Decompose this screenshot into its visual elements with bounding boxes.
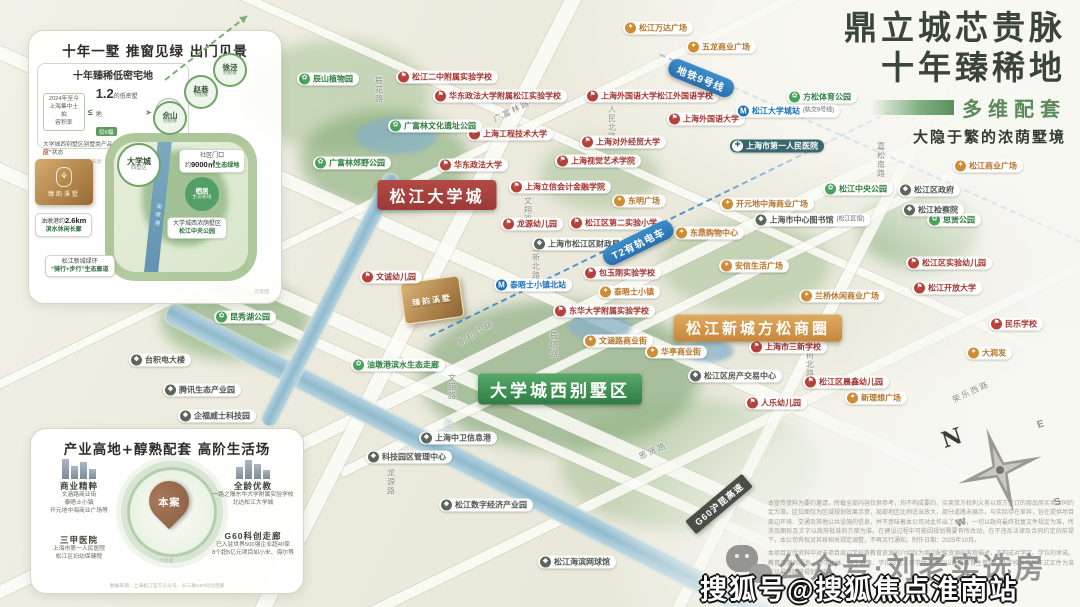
map-label-text: 上海市中心图书馆 <box>770 215 834 224</box>
tree-emblem-icon: ⚘ <box>56 167 72 187</box>
main-title-line2: 十年臻稀地 <box>844 48 1066 88</box>
scarcity-title: 十年臻稀低密宅地 <box>43 67 183 82</box>
map-label-school: ⚑华东政法大学附属松江实验学校 <box>433 90 567 103</box>
map-label-text: 松江数字经济产业园 <box>455 500 527 509</box>
school-icon: ⚑ <box>585 268 596 279</box>
map-label-text: 文诚幼儿园 <box>376 272 416 281</box>
map-label-text: 龙源幼儿园 <box>517 219 557 228</box>
map-banner: 大学城西别墅区 <box>478 374 642 405</box>
title-block: 鼎立城芯贵脉 十年臻稀地 多维配套 大隐于繁的浓荫墅境 <box>844 8 1066 147</box>
road-label: 文涵路 <box>447 374 458 401</box>
gov-icon: ◆ <box>165 385 176 396</box>
shop-icon: ✦ <box>625 23 636 34</box>
road-label: 辰花路 <box>374 77 385 104</box>
map-label-text: 华东政法大学 <box>454 160 502 169</box>
shop-icon: ✦ <box>585 336 596 347</box>
school-icon: ⚑ <box>914 283 925 294</box>
project-logo-text: 臻韵溪墅 <box>48 189 80 198</box>
map-label-text: 五龙商业广场 <box>702 42 750 51</box>
map-label-text: 松江开放大学 <box>928 283 976 292</box>
disclaimer-p1: 本宣传资料为要约邀请，所载全部内容仅供参考，均不构成要约，买卖双方权利义务以双方… <box>768 500 1074 546</box>
shop-icon: ✦ <box>722 199 733 210</box>
map-label-shop: ✦松江万达广场 <box>623 22 693 35</box>
map-label-text: 松江区实验幼儿园 <box>922 258 986 267</box>
main-title-line1: 鼎立城芯贵脉 <box>844 8 1066 48</box>
gov-icon: ◆ <box>904 205 915 216</box>
villa-belt-xujing: 徐泾别墅群 <box>213 53 247 87</box>
map-banner: 松江大学城 <box>377 180 496 210</box>
quadrant-commerce: 商业精粹 文涵路商业街 泰晤士小镇 开元地中海商业广场等 <box>31 457 127 516</box>
school-icon: ⚑ <box>557 156 568 167</box>
gov-icon: ◆ <box>690 371 701 382</box>
ratio-stat: 1.2的低密墅地 仅6幅 <box>96 85 143 139</box>
map-label-shop: ✦开元地中海商业广场 <box>720 198 814 211</box>
shop-icon: ✦ <box>688 42 699 53</box>
map-label-school: ⚑华东政法大学 <box>438 159 508 172</box>
map-label-text: 台积电大楼 <box>145 355 185 364</box>
quadrant-hospital: 三甲医院 上海市第一人民医院 松江区妇幼保健院 <box>31 535 127 562</box>
school-icon: ⚑ <box>435 91 446 102</box>
land-condition: 2024年至今 上海集中土拍 容积率 <box>43 93 85 130</box>
road-label: 嘉松南路 <box>876 142 887 178</box>
map-label-school: ⚑龙源幼儿园 <box>501 218 563 231</box>
callout-central-park: 大学城西浓荫墅区 松江中央公园 <box>167 217 227 239</box>
school-icon: ⚑ <box>747 398 758 409</box>
map-label-text: 泰晤士小镇北站 <box>510 280 566 289</box>
map-label-gov: ◆企福威士科技园 <box>178 410 256 423</box>
villa-belt-zhaoxiang: 赵巷别墅群 <box>184 75 218 109</box>
map-label-text: 包玉刚实验学校 <box>599 268 655 277</box>
map-label-text: 上海立信会计金融学院 <box>525 182 605 191</box>
shop-icon: ✦ <box>968 348 979 359</box>
map-label-text: 松江大学城站 <box>752 106 800 115</box>
map-label-hosp: ✚上海市第一人民医院 <box>730 140 824 153</box>
map-label-text: 东明广场 <box>628 196 660 205</box>
map-label-school: ⚑文诚幼儿园 <box>360 271 422 284</box>
map-label-gov: ◆松江海滨网球馆 <box>538 556 616 569</box>
promo-map-image: 臻韵溪墅 辰花路广富林路人民北路嘉松南路文翔路三新北路新松江路辰塔路玉树北路文涵… <box>0 0 1080 607</box>
map-label-sub: (松江区馆) <box>837 217 865 224</box>
le-symbol: ≤ <box>88 107 93 117</box>
map-label-sub: (轨交9号线) <box>803 108 834 115</box>
school-icon: ⚑ <box>805 377 816 388</box>
gov-icon: ◆ <box>368 452 379 463</box>
diagram-river-name: 油墩港 <box>152 203 163 229</box>
shop-icon: ✦ <box>847 393 858 404</box>
park-icon: ✿ <box>353 360 364 371</box>
map-label-text: 科技园区管理中心 <box>382 452 446 461</box>
map-label-text: 松江区晨鑫幼儿园 <box>819 377 883 386</box>
tagline: 多维配套 <box>962 93 1066 122</box>
map-label-shop: ✦兰桥休闲商业广场 <box>799 290 885 303</box>
gov-icon: ◆ <box>131 355 142 366</box>
map-label-shop: ✦文涵路商业街 <box>583 335 653 348</box>
shop-icon: ✦ <box>647 347 658 358</box>
map-label-text: 文涵路商业街 <box>599 336 647 345</box>
school-icon: ⚑ <box>398 72 409 83</box>
gov-icon: ◆ <box>180 411 191 422</box>
map-label-school: ⚑人乐幼儿园 <box>745 397 807 410</box>
shop-icon: ✦ <box>614 196 625 207</box>
park-icon: ✿ <box>789 92 800 103</box>
map-label-gov: ◆松江区政府 <box>898 184 960 197</box>
project-logo-card: ⚘ 臻韵溪墅 <box>35 159 93 205</box>
map-label-school: ⚑松江二中附属实验学校 <box>396 71 498 84</box>
map-label-park: ✿广富林文化遗址公园 <box>388 120 482 133</box>
map-label-text: 上海中卫信息港 <box>435 433 491 442</box>
park-icon: ✿ <box>299 74 310 85</box>
map-label-text: 东华大学附属实验学校 <box>569 306 649 315</box>
map-label-shop: ✦新理想广场 <box>845 392 907 405</box>
map-label-text: 上海市三新学校 <box>765 342 821 351</box>
school-icon: ⚑ <box>669 114 680 125</box>
map-label-text: 新理想广场 <box>861 393 901 402</box>
park-icon: ✿ <box>315 158 326 169</box>
map-label-text: 东鼎购物中心 <box>690 228 738 237</box>
park-icon: ✿ <box>390 121 401 132</box>
villa-belt-sheshan: 佘山别墅群 <box>153 101 187 135</box>
map-label-text: 企福威士科技园 <box>194 411 250 420</box>
subtitle: 大隐于繁的浓荫墅境 <box>844 126 1066 147</box>
gov-icon: ◆ <box>441 500 452 511</box>
shop-icon: ✦ <box>801 291 812 302</box>
map-label-text: 松江区政府 <box>914 185 954 194</box>
callout-riverfront: 油墩港约2.6km 滨水休闲长廊 <box>35 213 92 237</box>
shop-icon: ✦ <box>955 161 966 172</box>
school-icon: ⚑ <box>991 319 1002 330</box>
map-label-text: 泰晤士小镇 <box>614 287 654 296</box>
map-label-text: 华亭商业街 <box>661 347 701 356</box>
map-label-metro: M泰晤士小镇北站 <box>494 279 572 292</box>
map-label-shop: ✦东鼎购物中心 <box>674 227 744 240</box>
road-label: 龙源路 <box>386 469 397 496</box>
map-label-school: ⚑上海对外经贸大学 <box>580 136 666 149</box>
hosp-icon: ✚ <box>732 141 743 152</box>
map-label-shop: ✦泰晤士小镇 <box>598 286 660 299</box>
school-icon: ⚑ <box>511 182 522 193</box>
industry-card-title: 产业高地+醇熟配套 高阶生活场 <box>31 429 303 458</box>
gov-icon: ◆ <box>421 433 432 444</box>
map-label-text: 广富林文化遗址公园 <box>404 121 476 130</box>
map-label-park: ✿油墩港滨水生态走廊 <box>351 359 445 372</box>
map-label-shop: ✦松江商业广场 <box>953 160 1023 173</box>
map-label-text: 上海外国语大学松江外国语学校 <box>601 91 713 100</box>
map-label-shop: ✦安信生活广场 <box>719 260 789 273</box>
school-icon: ⚑ <box>571 218 582 229</box>
map-label-school: ⚑民乐学校 <box>989 318 1043 331</box>
school-icon: ⚑ <box>503 219 514 230</box>
map-label-text: 油墩港滨水生态走廊 <box>367 360 439 369</box>
map-label-gov: ◆松江检察院 <box>902 204 964 217</box>
schematic-note: 示意图 <box>255 288 269 295</box>
map-banner: 松江新城方松商圈 <box>674 315 842 342</box>
map-label-gov: ◆上海市中心图书馆(松江区馆) <box>754 214 871 227</box>
map-label-text: 腾讯生态产业园 <box>179 385 235 394</box>
map-label-text: 上海外国语大学 <box>683 114 739 123</box>
map-label-school: ⚑上海立信会计金融学院 <box>509 181 611 194</box>
arrow-icon: ➤ <box>145 108 152 117</box>
school-icon: ⚑ <box>440 160 451 171</box>
map-label-text: 开元地中海商业广场 <box>736 199 808 208</box>
map-label-text: 人乐幼儿园 <box>761 398 801 407</box>
map-label-text: 上海对外经贸大学 <box>596 137 660 146</box>
quadrant-g60: G60科创走廊 已入驻世界500强企业超40家 8个超5亿元项目如小米、海尔等 <box>205 531 301 558</box>
map-label-text: 松江万达广场 <box>639 23 687 32</box>
map-label-park: ✿昆秀湖公园 <box>214 311 276 324</box>
buildings-illustration <box>205 457 301 479</box>
park-icon: ✿ <box>825 184 836 195</box>
eco-card-title: 十年一墅 推窗见绿 出门见景 <box>29 31 281 60</box>
school-icon: ⚑ <box>751 342 762 353</box>
map-label-text: 昆秀湖公园 <box>230 312 270 321</box>
map-label-school: ⚑松江区晨鑫幼儿园 <box>803 376 889 389</box>
map-label-shop: ✦大润发 <box>966 347 1012 360</box>
map-label-text: 松江区第二实验小学 <box>585 218 657 227</box>
tagline-deco-bar <box>870 100 954 115</box>
quadrant-education: 全龄优教 一路之隔东华大学附属实验学校 北达松江大学城 <box>205 457 301 508</box>
school-icon: ⚑ <box>555 306 566 317</box>
map-label-school: ⚑上海外国语大学 <box>667 113 745 126</box>
industry-card: 产业高地+醇熟配套 高阶生活场 本案 示意图 商业精粹 文涵路商业街 泰晤士小镇… <box>30 428 304 594</box>
map-label-gov: ◆松江区房产交易中心 <box>688 370 782 383</box>
map-label-text: 松江商业广场 <box>969 161 1017 170</box>
map-label-text: 广富林郊野公园 <box>329 158 385 167</box>
gov-icon: ◆ <box>540 557 551 568</box>
map-label-school: ⚑松江开放大学 <box>912 282 982 295</box>
zone-circle: 大学城 西墅区 <box>117 143 161 187</box>
school-icon: ⚑ <box>582 137 593 148</box>
shop-icon: ✦ <box>721 261 732 272</box>
map-label-text: 上海视觉艺术学院 <box>571 156 635 165</box>
map-label-text: 松江中央公园 <box>839 184 887 193</box>
callout-gate-green: 社区门口 约9000㎡生态绿地 <box>179 149 245 173</box>
park-icon: ✿ <box>216 312 227 323</box>
map-label-text: 松江区房产交易中心 <box>704 371 776 380</box>
map-label-gov: ◆台积电大楼 <box>129 354 191 367</box>
map-label-gov: ◆科技园区管理中心 <box>366 451 452 464</box>
map-label-school: ⚑上海市三新学校 <box>749 341 827 354</box>
road-label: 辰塔路 <box>549 332 560 359</box>
shop-icon: ✦ <box>600 287 611 298</box>
school-icon: ⚑ <box>362 272 373 283</box>
buildings-illustration <box>31 457 127 479</box>
map-banner: G60沪昆高速 <box>685 474 753 535</box>
map-label-shop: ✦华亭商业街 <box>645 346 707 359</box>
map-label-text: 大润发 <box>982 348 1006 357</box>
map-label-text: 思贤公园 <box>943 215 975 224</box>
map-label-text: 松江检察院 <box>918 205 958 214</box>
map-label-school: ⚑包玉刚实验学校 <box>583 267 661 280</box>
sohu-watermark: 搜狐号@搜狐焦点淮南站 <box>700 568 1018 607</box>
map-label-text: 辰山植物园 <box>313 74 353 83</box>
map-label-school: ⚑上海视觉艺术学院 <box>555 155 641 168</box>
gov-icon: ◆ <box>534 239 545 250</box>
shop-icon: ✦ <box>676 228 687 239</box>
metro-icon: M <box>738 106 749 117</box>
map-label-gov: ◆腾讯生态产业园 <box>163 384 241 397</box>
map-label-text: 上海工程技术大学 <box>483 129 547 138</box>
eco-value-card: 十年一墅 推窗见绿 出门见景 十年臻稀低密宅地 2024年至今 上海集中土拍 容… <box>28 30 282 304</box>
map-label-text: 华东政法大学附属松江实验学校 <box>449 91 561 100</box>
eco-circle: 栖居 生态秘境 <box>185 177 219 211</box>
school-icon: ⚑ <box>908 258 919 269</box>
map-label-park: ✿广富林郊野公园 <box>313 157 391 170</box>
map-label-text: 兰桥休闲商业广场 <box>815 291 879 300</box>
map-label-school: ⚑松江区实验幼儿园 <box>906 257 992 270</box>
ratio-tag: 仅6幅 <box>96 127 117 136</box>
map-label-school: ⚑东华大学附属实验学校 <box>553 305 655 318</box>
school-icon: ⚑ <box>587 91 598 102</box>
map-label-gov: ◆上海中卫信息港 <box>419 432 497 445</box>
gov-icon: ◆ <box>756 215 767 226</box>
map-label-text: 民乐学校 <box>1005 319 1037 328</box>
map-label-shop: ✦东明广场 <box>612 195 666 208</box>
map-label-text: 松江二中附属实验学校 <box>412 72 492 81</box>
map-label-park: ✿松江中央公园 <box>823 183 893 196</box>
map-label-shop: ✦五龙商业广场 <box>686 41 756 54</box>
map-label-park: ✿辰山植物园 <box>297 73 359 86</box>
project-site-logo: 臻韵溪墅 <box>411 292 452 308</box>
map-label-metro: M松江大学城站(轨交9号线) <box>736 105 840 118</box>
callout-green-loop: 松江新城绿环 “骑行+步行”生态廊道 <box>45 255 115 277</box>
map-label-text: 松江海滨网球馆 <box>554 557 610 566</box>
data-source-note: 数据来源：上海松江官方公众号、长三角G60科创走廊 <box>31 582 303 589</box>
schematic-note: 示意图 <box>159 557 173 564</box>
map-label-text: 上海市第一人民医院 <box>746 141 818 150</box>
map-label-text: 安信生活广场 <box>735 261 783 270</box>
metro-icon: M <box>496 280 507 291</box>
map-label-school: ⚑上海外国语大学松江外国语学校 <box>585 90 719 103</box>
gov-icon: ◆ <box>900 185 911 196</box>
map-label-gov: ◆松江数字经济产业园 <box>439 499 533 512</box>
